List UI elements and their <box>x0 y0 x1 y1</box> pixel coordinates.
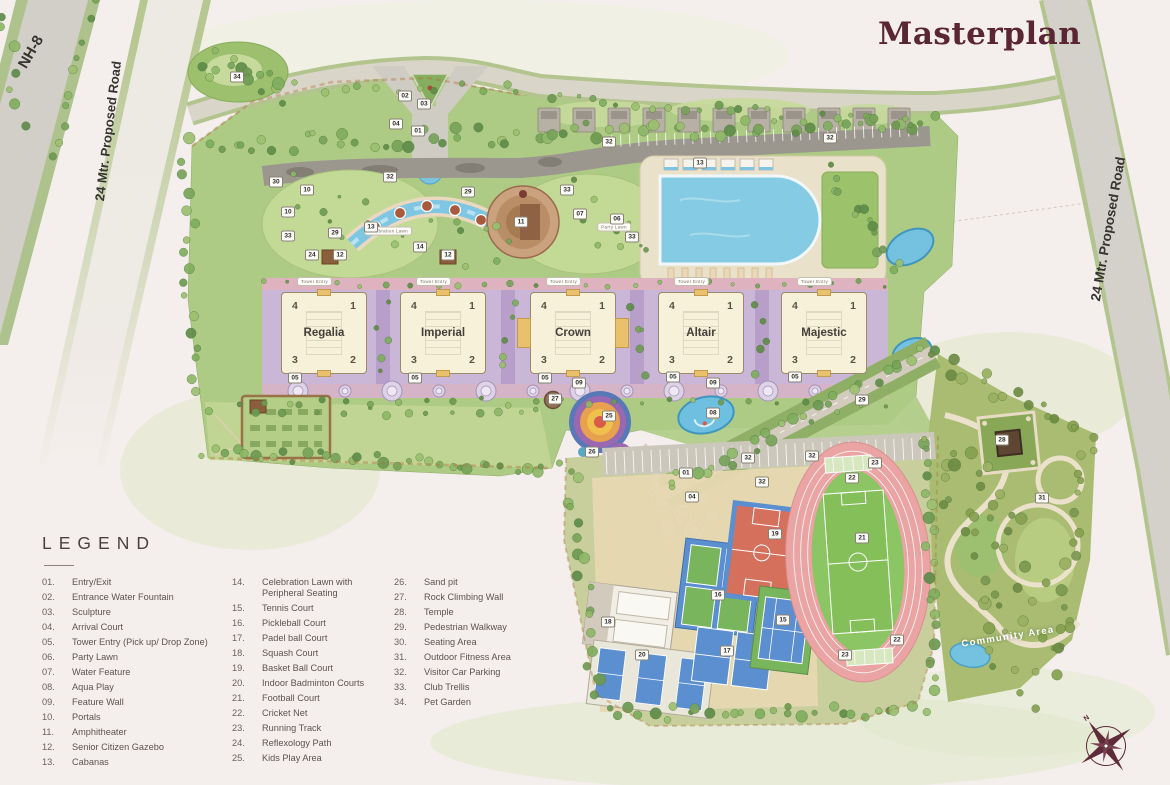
map-marker-10: 10 <box>281 207 295 218</box>
legend: LEGEND 01.Entry/Exit02.Entrance Water Fo… <box>42 533 520 772</box>
legend-item: 33.Club Trellis <box>394 682 520 693</box>
map-marker-05: 05 <box>666 372 680 383</box>
map-marker-16: 16 <box>711 590 725 601</box>
legend-item: 18.Squash Court <box>232 648 394 659</box>
legend-item-label: Football Court <box>262 693 394 704</box>
map-marker-34: 34 <box>230 72 244 83</box>
wing-number: 1 <box>850 300 856 312</box>
football-field <box>823 490 893 634</box>
tower-notch <box>566 370 580 377</box>
legend-item-number: 21. <box>232 693 262 704</box>
legend-item: 22.Cricket Net <box>232 708 394 719</box>
tower-crown: 4 1 3 2 Crown <box>530 292 616 374</box>
masterplan-page: 4 1 3 2 Regalia 4 1 3 2 Imperial 4 1 3 2… <box>0 0 1170 785</box>
tower-notch <box>694 370 708 377</box>
legend-item-number: 27. <box>394 592 424 603</box>
tower-entry-pill: Tower Entry <box>546 277 581 286</box>
legend-item-label: Basket Ball Court <box>262 663 394 674</box>
tower-notch <box>817 370 831 377</box>
map-marker-28: 28 <box>995 435 1009 446</box>
legend-divider <box>44 565 74 566</box>
tower-notch <box>566 289 580 296</box>
legend-item: 15.Tennis Court <box>232 603 394 614</box>
map-marker-23: 23 <box>868 458 882 469</box>
legend-item-number: 04. <box>42 622 72 633</box>
map-marker-33: 33 <box>281 231 295 242</box>
legend-item-label: Cricket Net <box>262 708 394 719</box>
legend-item-number: 22. <box>232 708 262 719</box>
map-marker-05: 05 <box>408 373 422 384</box>
wing-number: 4 <box>669 300 675 312</box>
map-marker-04: 04 <box>389 119 403 130</box>
wing-number: 3 <box>669 354 675 366</box>
map-marker-32: 32 <box>755 477 769 488</box>
map-marker-20: 20 <box>635 650 649 661</box>
legend-column-1: 01.Entry/Exit02.Entrance Water Fountain0… <box>42 577 232 772</box>
legend-item-number: 13. <box>42 757 72 768</box>
tower-name: Crown <box>531 327 615 339</box>
legend-item-label: Party Lawn <box>72 652 232 663</box>
tower-notch <box>317 370 331 377</box>
wing-number: 3 <box>792 354 798 366</box>
map-marker-22: 22 <box>845 473 859 484</box>
tower-side-tab <box>615 318 629 348</box>
legend-item: 21.Football Court <box>232 693 394 704</box>
legend-item-label: Tennis Court <box>262 603 394 614</box>
wing-number: 3 <box>292 354 298 366</box>
legend-item-label: Temple <box>424 607 520 618</box>
tower-notch <box>436 289 450 296</box>
wing-number: 2 <box>599 354 605 366</box>
legend-item: 14.Celebration Lawn with Peripheral Seat… <box>232 577 394 599</box>
tower-altair: 4 1 3 2 Altair <box>658 292 744 374</box>
map-marker-33: 33 <box>560 185 574 196</box>
tower-imperial: 4 1 3 2 Imperial <box>400 292 486 374</box>
wing-number: 2 <box>727 354 733 366</box>
legend-item-number: 09. <box>42 697 72 708</box>
map-marker-32: 32 <box>602 137 616 148</box>
legend-item: 13.Cabanas <box>42 757 232 768</box>
legend-item-number: 02. <box>42 592 72 603</box>
legend-item-label: Pedestrian Walkway <box>424 622 520 633</box>
tower-regalia: 4 1 3 2 Regalia <box>281 292 367 374</box>
legend-item-label: Rock Climbing Wall <box>424 592 520 603</box>
legend-item-label: Kids Play Area <box>262 753 394 764</box>
legend-item: 25.Kids Play Area <box>232 753 394 764</box>
legend-item-label: Cabanas <box>72 757 232 768</box>
wing-number: 4 <box>292 300 298 312</box>
map-marker-14: 14 <box>413 242 427 253</box>
legend-item: 28.Temple <box>394 607 520 618</box>
map-marker-13: 13 <box>693 158 707 169</box>
tower-majestic: 4 1 3 2 Majestic <box>781 292 867 374</box>
tower-entry-pill: Tower Entry <box>416 277 451 286</box>
legend-item: 17.Padel ball Court <box>232 633 394 644</box>
map-marker-32: 32 <box>805 451 819 462</box>
legend-item-label: Entry/Exit <box>72 577 232 588</box>
wing-number: 1 <box>599 300 605 312</box>
wing-number: 2 <box>350 354 356 366</box>
legend-item-number: 32. <box>394 667 424 678</box>
legend-item: 29.Pedestrian Walkway <box>394 622 520 633</box>
map-marker-08: 08 <box>706 408 720 419</box>
legend-item: 12.Senior Citizen Gazebo <box>42 742 232 753</box>
legend-item: 10.Portals <box>42 712 232 723</box>
legend-item-number: 20. <box>232 678 262 689</box>
legend-item-label: Pet Garden <box>424 697 520 708</box>
wing-number: 3 <box>541 354 547 366</box>
legend-item-number: 17. <box>232 633 262 644</box>
legend-item-number: 30. <box>394 637 424 648</box>
wing-number: 2 <box>469 354 475 366</box>
map-marker-09: 09 <box>706 378 720 389</box>
wing-number: 1 <box>350 300 356 312</box>
map-marker-12: 12 <box>441 250 455 261</box>
map-marker-06: 06 <box>610 214 624 225</box>
swimming-pool <box>660 176 820 264</box>
wing-number: 3 <box>411 354 417 366</box>
map-marker-02: 02 <box>398 91 412 102</box>
legend-item: 34.Pet Garden <box>394 697 520 708</box>
map-marker-30: 30 <box>269 177 283 188</box>
legend-item-number: 08. <box>42 682 72 693</box>
legend-item-label: Amphitheater <box>72 727 232 738</box>
legend-item-number: 05. <box>42 637 72 648</box>
legend-item-label: Reflexology Path <box>262 738 394 749</box>
wing-number: 1 <box>469 300 475 312</box>
map-marker-25: 25 <box>602 411 616 422</box>
page-title: Masterplan <box>878 16 1081 52</box>
wing-number: 4 <box>541 300 547 312</box>
map-marker-27: 27 <box>548 394 562 405</box>
map-marker-04: 04 <box>685 492 699 503</box>
map-marker-22: 22 <box>890 635 904 646</box>
map-marker-29: 29 <box>328 228 342 239</box>
legend-item-number: 29. <box>394 622 424 633</box>
legend-item: 20.Indoor Badminton Courts <box>232 678 394 689</box>
map-marker-26: 26 <box>585 447 599 458</box>
map-marker-17: 17 <box>720 646 734 657</box>
legend-item-number: 23. <box>232 723 262 734</box>
map-marker-11: 11 <box>514 217 528 228</box>
legend-item-number: 10. <box>42 712 72 723</box>
compass-rose: N <box>1068 708 1144 784</box>
legend-item-number: 33. <box>394 682 424 693</box>
wing-number: 1 <box>727 300 733 312</box>
map-marker-15: 15 <box>776 615 790 626</box>
swimming-pool-area <box>640 156 886 290</box>
legend-item: 30.Seating Area <box>394 637 520 648</box>
legend-item-label: Tower Entry (Pick up/ Drop Zone) <box>72 637 232 648</box>
legend-item: 05.Tower Entry (Pick up/ Drop Zone) <box>42 637 232 648</box>
wing-number: 4 <box>792 300 798 312</box>
legend-item-label: Visitor Car Parking <box>424 667 520 678</box>
legend-item-number: 03. <box>42 607 72 618</box>
legend-item-label: Squash Court <box>262 648 394 659</box>
legend-item-label: Indoor Badminton Courts <box>262 678 394 689</box>
compass-north-label: N <box>1083 714 1091 723</box>
legend-item-number: 16. <box>232 618 262 629</box>
map-marker-32: 32 <box>823 133 837 144</box>
legend-item-number: 31. <box>394 652 424 663</box>
legend-item-label: Portals <box>72 712 232 723</box>
legend-item: 27.Rock Climbing Wall <box>394 592 520 603</box>
map-marker-18: 18 <box>601 617 615 628</box>
tower-name: Regalia <box>282 327 366 339</box>
map-marker-32: 32 <box>383 172 397 183</box>
legend-item: 19.Basket Ball Court <box>232 663 394 674</box>
map-marker-23: 23 <box>838 650 852 661</box>
map-marker-13: 13 <box>364 222 378 233</box>
legend-item-number: 07. <box>42 667 72 678</box>
map-marker-05: 05 <box>288 373 302 384</box>
legend-item: 11.Amphitheater <box>42 727 232 738</box>
legend-item-number: 24. <box>232 738 262 749</box>
legend-item: 02.Entrance Water Fountain <box>42 592 232 603</box>
legend-item-number: 34. <box>394 697 424 708</box>
map-marker-33: 33 <box>625 232 639 243</box>
map-marker-32: 32 <box>741 453 755 464</box>
legend-item: 23.Running Track <box>232 723 394 734</box>
legend-item-number: 25. <box>232 753 262 764</box>
legend-item-number: 19. <box>232 663 262 674</box>
legend-item-number: 28. <box>394 607 424 618</box>
map-marker-19: 19 <box>768 529 782 540</box>
legend-item-label: Arrival Court <box>72 622 232 633</box>
legend-item: 01.Entry/Exit <box>42 577 232 588</box>
map-marker-10: 10 <box>300 185 314 196</box>
legend-item: 09.Feature Wall <box>42 697 232 708</box>
map-marker-01: 01 <box>411 126 425 137</box>
legend-item: 03.Sculpture <box>42 607 232 618</box>
legend-item: 07.Water Feature <box>42 667 232 678</box>
legend-item-label: Feature Wall <box>72 697 232 708</box>
legend-title: LEGEND <box>42 533 520 554</box>
tower-side-tab <box>517 318 531 348</box>
wing-number: 2 <box>850 354 856 366</box>
legend-item: 04.Arrival Court <box>42 622 232 633</box>
celebration-lawn <box>262 170 438 278</box>
legend-item-number: 06. <box>42 652 72 663</box>
legend-item-label: Celebration Lawn with Peripheral Seating <box>262 577 394 599</box>
legend-item-number: 18. <box>232 648 262 659</box>
tower-notch <box>436 370 450 377</box>
map-marker-12: 12 <box>333 250 347 261</box>
tower-name: Majestic <box>782 327 866 339</box>
legend-item-number: 15. <box>232 603 262 614</box>
legend-item-number: 26. <box>394 577 424 588</box>
map-marker-07: 07 <box>573 209 587 220</box>
legend-item-label: Club Trellis <box>424 682 520 693</box>
legend-item-label: Outdoor Fitness Area <box>424 652 520 663</box>
tower-notch <box>694 289 708 296</box>
legend-column-2: 14.Celebration Lawn with Peripheral Seat… <box>232 577 394 772</box>
tower-notch <box>817 289 831 296</box>
map-marker-29: 29 <box>855 395 869 406</box>
legend-item: 31.Outdoor Fitness Area <box>394 652 520 663</box>
legend-item: 32.Visitor Car Parking <box>394 667 520 678</box>
map-marker-31: 31 <box>1035 493 1049 504</box>
legend-item-label: Sculpture <box>72 607 232 618</box>
tower-entry-pill: Tower Entry <box>797 277 832 286</box>
legend-item-number: 14. <box>232 577 262 599</box>
legend-item: 24.Reflexology Path <box>232 738 394 749</box>
legend-column-3: 26.Sand pit27.Rock Climbing Wall28.Templ… <box>394 577 520 772</box>
map-marker-29: 29 <box>461 187 475 198</box>
legend-item-label: Seating Area <box>424 637 520 648</box>
tower-entry-pill: Tower Entry <box>674 277 709 286</box>
map-marker-01: 01 <box>679 468 693 479</box>
legend-item-number: 11. <box>42 727 72 738</box>
legend-item: 26.Sand pit <box>394 577 520 588</box>
legend-item-label: Entrance Water Fountain <box>72 592 232 603</box>
legend-item-label: Running Track <box>262 723 394 734</box>
tower-notch <box>317 289 331 296</box>
map-marker-24: 24 <box>305 250 319 261</box>
map-marker-05: 05 <box>788 372 802 383</box>
map-marker-03: 03 <box>417 99 431 110</box>
legend-item-number: 12. <box>42 742 72 753</box>
legend-item: 16.Pickleball Court <box>232 618 394 629</box>
legend-item-label: Sand pit <box>424 577 520 588</box>
tower-name: Altair <box>659 327 743 339</box>
map-marker-21: 21 <box>855 533 869 544</box>
map-marker-05: 05 <box>538 373 552 384</box>
map-marker-09: 09 <box>572 378 586 389</box>
tower-entry-pill: Tower Entry <box>297 277 332 286</box>
legend-item-label: Padel ball Court <box>262 633 394 644</box>
wing-number: 4 <box>411 300 417 312</box>
legend-item: 08.Aqua Play <box>42 682 232 693</box>
legend-item: 06.Party Lawn <box>42 652 232 663</box>
legend-item-label: Aqua Play <box>72 682 232 693</box>
tower-name: Imperial <box>401 327 485 339</box>
legend-item-label: Pickleball Court <box>262 618 394 629</box>
legend-item-label: Water Feature <box>72 667 232 678</box>
legend-item-number: 01. <box>42 577 72 588</box>
legend-item-label: Senior Citizen Gazebo <box>72 742 232 753</box>
